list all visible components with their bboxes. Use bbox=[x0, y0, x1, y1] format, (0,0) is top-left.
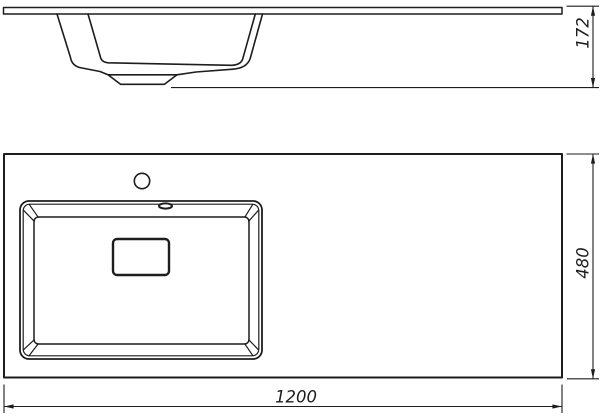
plan-view bbox=[4, 154, 562, 378]
side-view bbox=[4, 8, 563, 85]
drain-outline bbox=[113, 239, 169, 275]
faucet-hole bbox=[134, 173, 149, 188]
sink-drawing-canvas: 172 480 bbox=[0, 0, 600, 416]
dimension-height bbox=[171, 6, 599, 87]
dimension-depth-label: 480 bbox=[574, 247, 593, 279]
arrow-right-icon bbox=[552, 404, 562, 408]
arrow-up-icon bbox=[591, 154, 595, 164]
basin-rim bbox=[23, 204, 259, 356]
arrow-up-icon bbox=[591, 6, 595, 16]
dimension-height-label: 172 bbox=[574, 17, 593, 49]
drain-outlet-profile bbox=[108, 75, 177, 85]
countertop-slab bbox=[4, 8, 563, 15]
overflow-slot bbox=[159, 203, 172, 208]
technical-drawing: 172 480 bbox=[0, 0, 600, 416]
basin-outline bbox=[20, 201, 262, 359]
arrow-down-icon bbox=[591, 369, 595, 379]
dimension-width-label: 1200 bbox=[275, 388, 317, 407]
basin-inner-profile bbox=[88, 14, 255, 65]
basin-bowl bbox=[34, 217, 249, 344]
arrow-left-icon bbox=[4, 404, 14, 408]
corner-chamfers bbox=[24, 205, 259, 356]
arrow-down-icon bbox=[591, 78, 595, 88]
